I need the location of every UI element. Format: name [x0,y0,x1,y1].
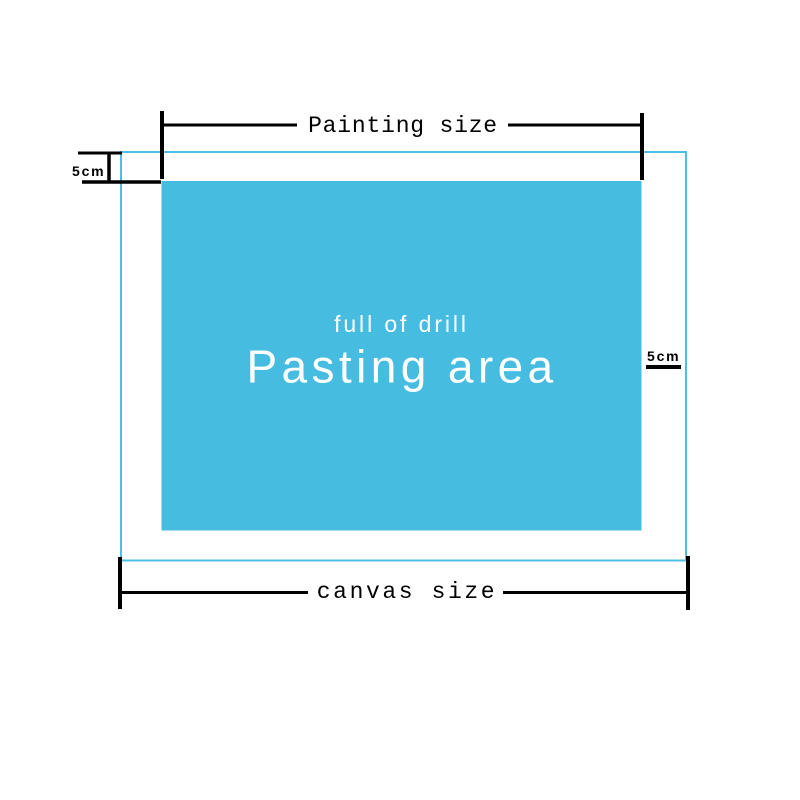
svg-text:5cm: 5cm [647,348,680,364]
svg-text:full of drill: full of drill [334,311,469,337]
svg-text:Pasting area: Pasting area [246,341,557,393]
svg-text:5cm: 5cm [72,163,105,179]
svg-text:canvas size: canvas size [317,579,497,605]
svg-text:Painting size: Painting size [308,113,498,139]
